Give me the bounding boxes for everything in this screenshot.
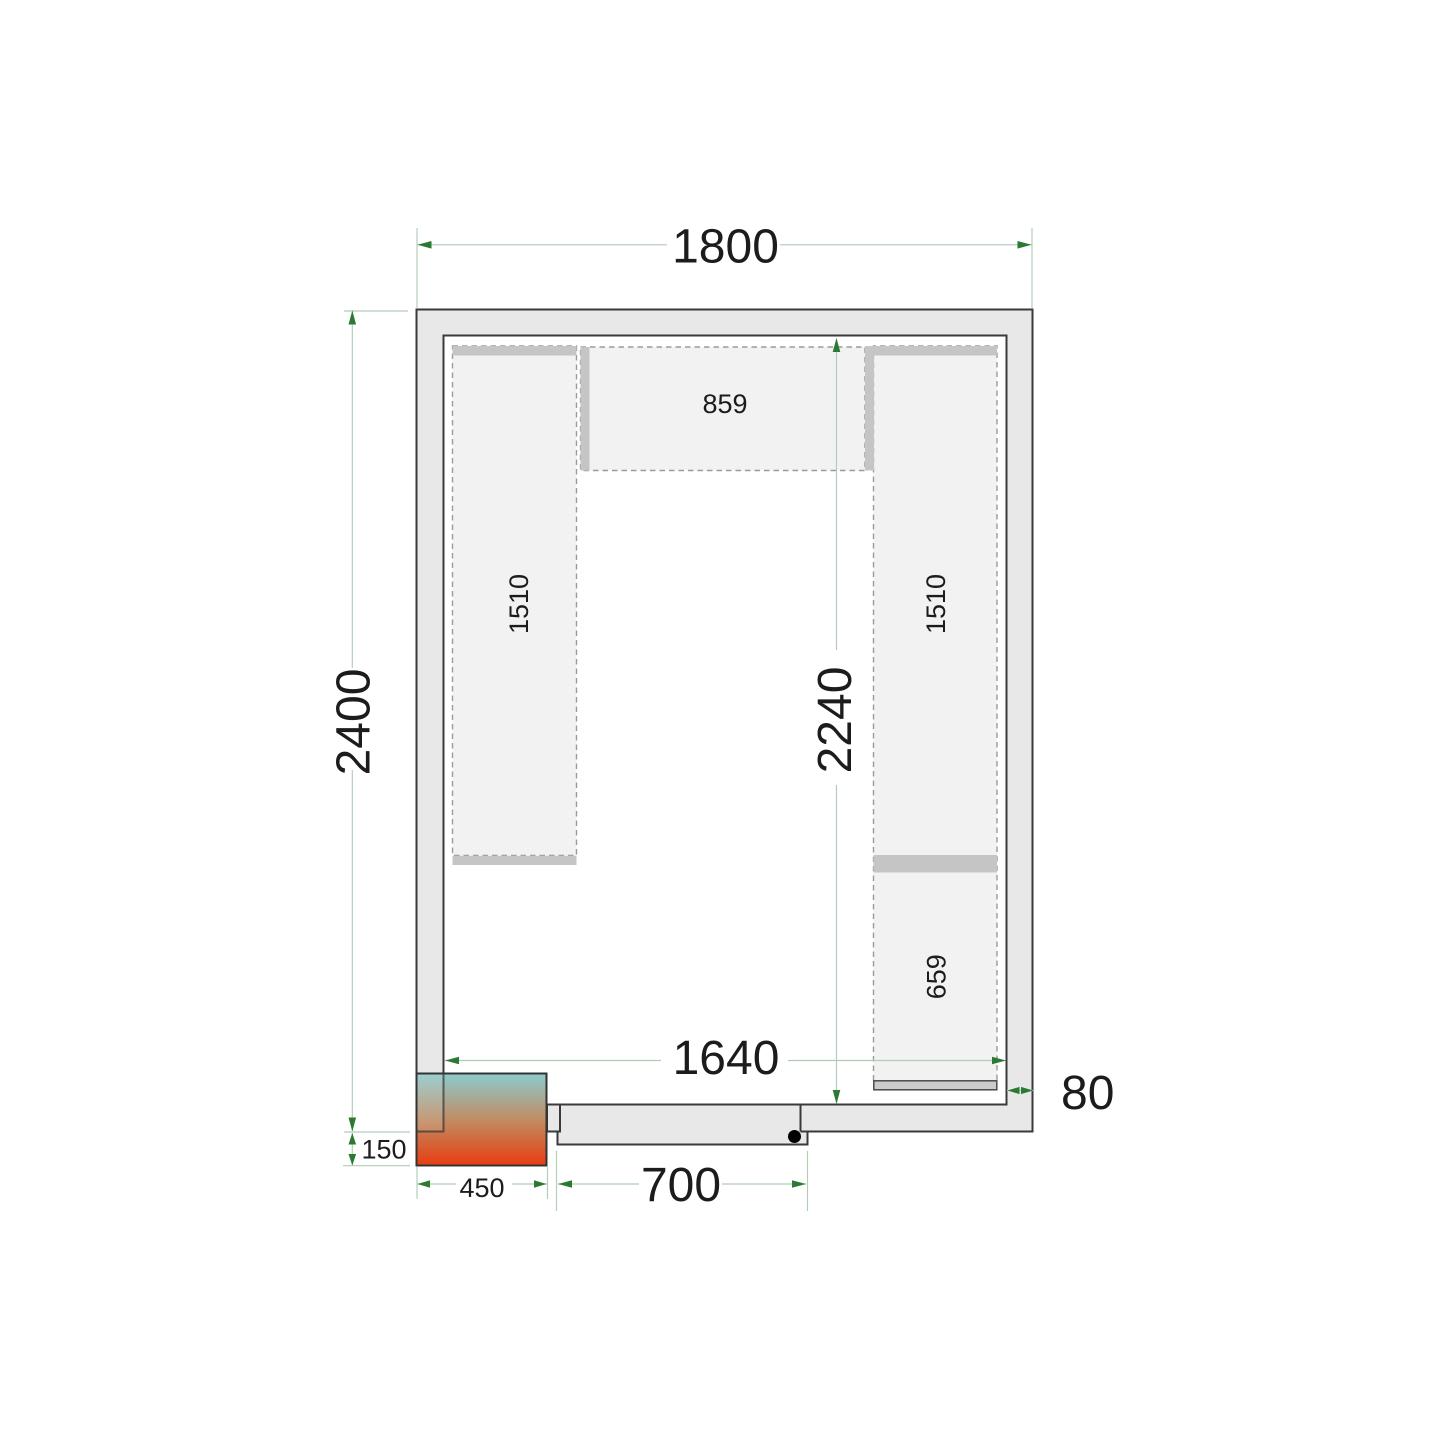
svg-text:80: 80 (1061, 1067, 1114, 1120)
svg-text:1640: 1640 (673, 1032, 780, 1085)
svg-text:1510: 1510 (504, 574, 534, 634)
svg-text:2400: 2400 (328, 669, 381, 776)
svg-text:1800: 1800 (672, 221, 779, 274)
svg-text:859: 859 (702, 389, 747, 419)
svg-text:659: 659 (921, 954, 951, 999)
svg-text:2240: 2240 (809, 667, 862, 774)
svg-text:1510: 1510 (921, 574, 951, 634)
svg-text:150: 150 (362, 1135, 407, 1165)
svg-text:700: 700 (641, 1159, 721, 1212)
svg-text:450: 450 (459, 1173, 504, 1203)
